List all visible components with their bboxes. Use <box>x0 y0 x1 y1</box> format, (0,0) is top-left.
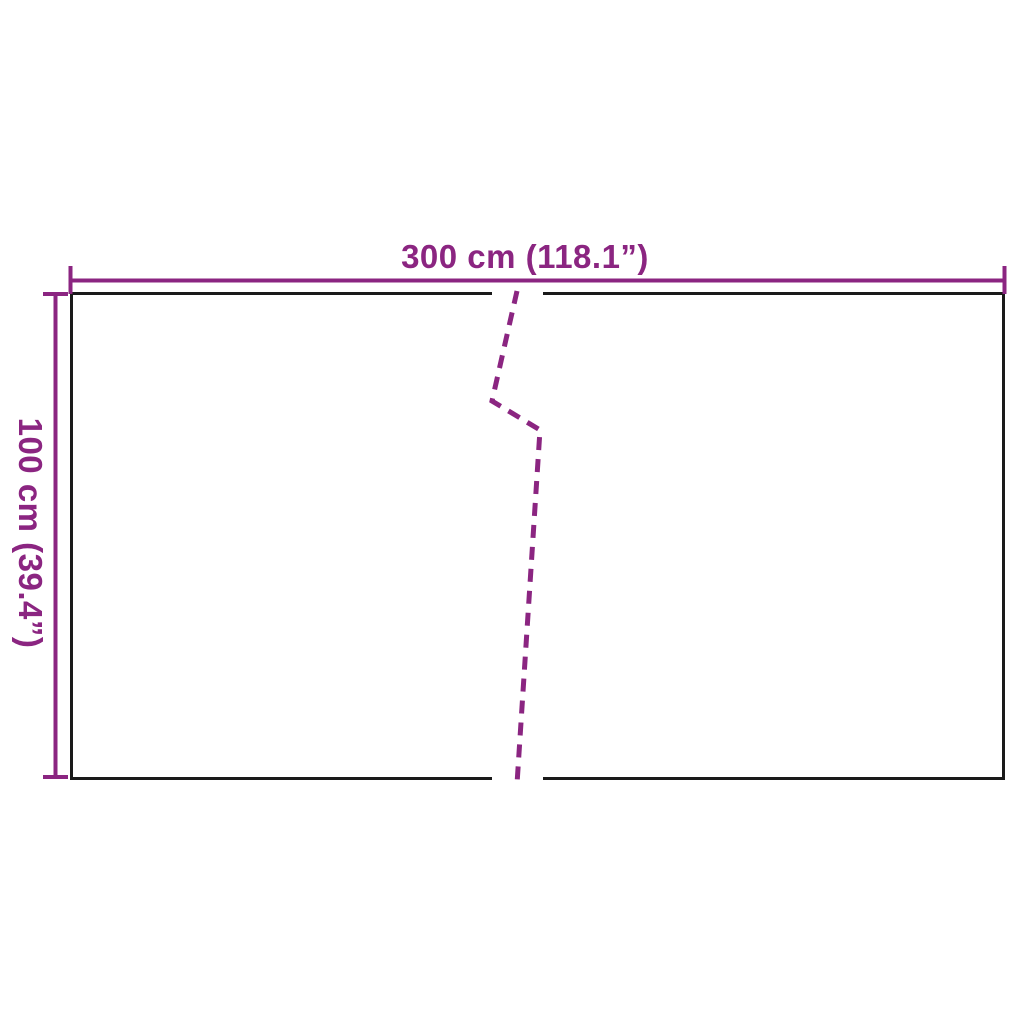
diagram-canvas <box>0 0 1024 1024</box>
width-label: 300 cm (118.1”) <box>401 238 649 276</box>
panel-outline <box>70 292 1005 780</box>
product-dimension-diagram: 300 cm (118.1”) 100 cm (39.4”) <box>0 0 1024 1024</box>
height-label: 100 cm (39.4”) <box>11 418 49 649</box>
break-line <box>492 291 540 784</box>
